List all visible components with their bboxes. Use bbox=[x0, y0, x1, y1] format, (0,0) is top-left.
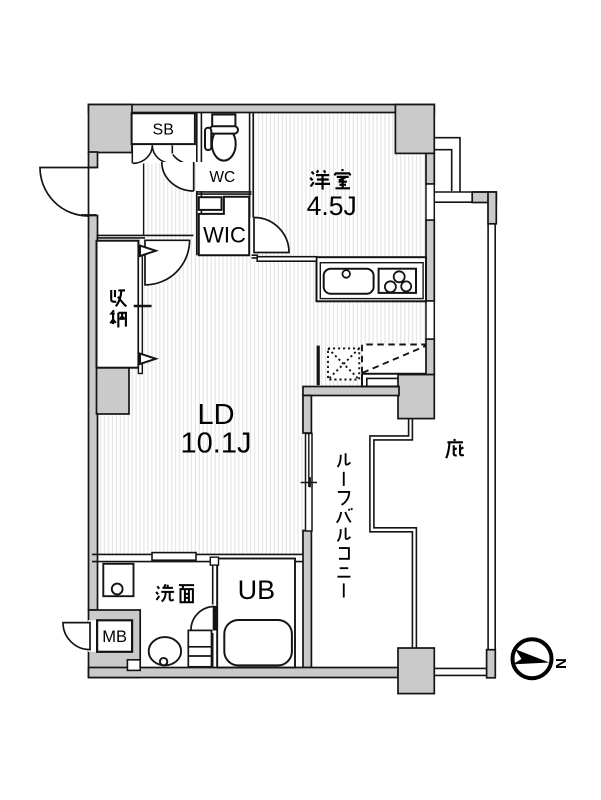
svg-text:UB: UB bbox=[238, 575, 276, 605]
svg-text:N: N bbox=[552, 658, 569, 669]
svg-text:LD: LD bbox=[197, 399, 234, 431]
svg-text:SB: SB bbox=[153, 122, 174, 139]
svg-text:WIC: WIC bbox=[203, 222, 246, 247]
svg-text:10.1J: 10.1J bbox=[181, 428, 252, 460]
svg-text:MB: MB bbox=[102, 628, 127, 646]
svg-text:WC: WC bbox=[209, 169, 235, 186]
svg-text:4.5J: 4.5J bbox=[307, 191, 357, 221]
